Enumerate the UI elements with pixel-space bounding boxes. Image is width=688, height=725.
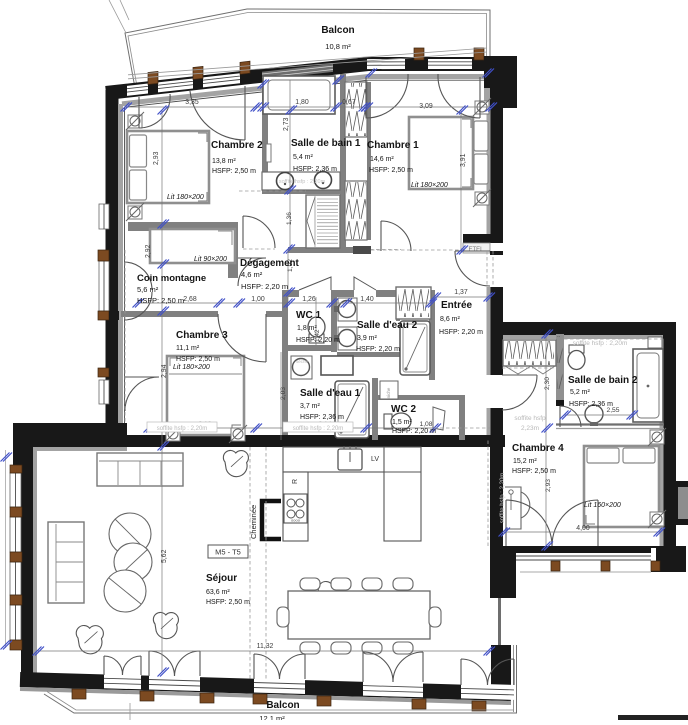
svg-text:Lit 160×200: Lit 160×200 — [584, 502, 621, 509]
svg-text:Chambre 4: Chambre 4 — [512, 443, 564, 454]
svg-text:2,30: 2,30 — [544, 377, 551, 390]
svg-text:63,6 m²: 63,6 m² — [206, 589, 230, 596]
svg-text:11,32: 11,32 — [257, 643, 274, 650]
svg-text:WC 1: WC 1 — [296, 310, 321, 321]
svg-text:HSFP: 2,50 m: HSFP: 2,50 m — [137, 296, 184, 305]
svg-text:M5 - T5: M5 - T5 — [215, 548, 241, 557]
svg-text:soffite hsfp : 2,20m: soffite hsfp : 2,20m — [293, 426, 344, 432]
svg-text:Lit 180×200: Lit 180×200 — [167, 194, 204, 201]
svg-text:HSFP: 2,20 m: HSFP: 2,20 m — [241, 282, 288, 291]
svg-text:Chambre 2: Chambre 2 — [211, 140, 263, 151]
svg-text:Lit 90×200: Lit 90×200 — [194, 256, 227, 263]
svg-text:1,08: 1,08 — [419, 421, 432, 428]
svg-text:1,26: 1,26 — [302, 296, 316, 303]
svg-text:3,9 m²: 3,9 m² — [357, 335, 378, 342]
svg-text:Salle d'eau 1: Salle d'eau 1 — [300, 388, 361, 399]
svg-text:Salle d'eau 2: Salle d'eau 2 — [357, 320, 418, 331]
svg-text:10,8 m²: 10,8 m² — [325, 42, 351, 51]
svg-text:1,8 m²: 1,8 m² — [297, 325, 318, 332]
svg-text:3,91: 3,91 — [460, 153, 467, 167]
svg-text:soffite hsfp : 2,20m: soffite hsfp : 2,20m — [500, 473, 506, 524]
svg-text:5,6 m²: 5,6 m² — [137, 285, 159, 294]
svg-text:12,1 m²: 12,1 m² — [259, 714, 285, 720]
svg-text:1,5 m²: 1,5 m² — [392, 419, 413, 426]
svg-text:4,00: 4,00 — [576, 525, 590, 532]
svg-text:niche: niche — [386, 387, 391, 398]
svg-text:15,2 m²: 15,2 m² — [513, 458, 537, 465]
svg-text:sèche: sèche — [296, 359, 309, 364]
svg-text:HSFP: 2,50 m: HSFP: 2,50 m — [512, 468, 556, 475]
svg-text:HSFP: 2,36 m: HSFP: 2,36 m — [569, 401, 613, 408]
svg-text:HSFP: 2,50 m: HSFP: 2,50 m — [176, 356, 220, 363]
svg-text:R: R — [292, 479, 299, 484]
svg-text:2,55: 2,55 — [606, 407, 619, 414]
svg-text:2,94: 2,94 — [161, 364, 168, 378]
svg-text:Chambre 3: Chambre 3 — [176, 330, 228, 341]
svg-text:HSFP: 2,36 m: HSFP: 2,36 m — [300, 414, 344, 421]
svg-text:5,62: 5,62 — [161, 549, 168, 563]
svg-text:1,37: 1,37 — [454, 289, 468, 296]
svg-text:2,68: 2,68 — [183, 296, 197, 303]
svg-text:HSFP: 2,20 m: HSFP: 2,20 m — [296, 337, 340, 344]
svg-text:5,2 m²: 5,2 m² — [570, 389, 591, 396]
svg-text:4,6 m²: 4,6 m² — [241, 270, 263, 279]
svg-text:HSFP: 2,50 m: HSFP: 2,50 m — [206, 599, 250, 606]
svg-text:WC 2: WC 2 — [391, 404, 416, 415]
svg-text:2,03: 2,03 — [280, 387, 287, 400]
svg-text:1,80: 1,80 — [295, 99, 309, 106]
svg-text:Balcon: Balcon — [321, 25, 354, 36]
svg-text:2,73: 2,73 — [283, 117, 290, 131]
svg-text:1,00: 1,00 — [251, 296, 265, 303]
svg-text:3,35: 3,35 — [185, 99, 199, 106]
svg-text:Salle de bain 1: Salle de bain 1 — [291, 138, 361, 149]
svg-text:HSFP: 2,20 m: HSFP: 2,20 m — [392, 428, 436, 435]
svg-text:oooo: oooo — [291, 518, 301, 523]
svg-text:2,23m: 2,23m — [521, 425, 539, 432]
svg-text:14,6 m²: 14,6 m² — [370, 156, 394, 163]
svg-text:2,92: 2,92 — [145, 244, 152, 258]
svg-text:13,8 m²: 13,8 m² — [212, 158, 236, 165]
svg-text:HSFP: 2,50 m: HSFP: 2,50 m — [212, 168, 256, 175]
svg-text:3,7 m²: 3,7 m² — [300, 403, 321, 410]
svg-text:5,4 m²: 5,4 m² — [293, 154, 314, 161]
svg-text:Balcon: Balcon — [266, 700, 299, 711]
svg-text:soffite hsfp : 2,20m: soffite hsfp : 2,20m — [573, 340, 628, 347]
svg-text:11,1 m²: 11,1 m² — [176, 345, 200, 352]
svg-text:1,36: 1,36 — [286, 212, 293, 225]
svg-text:HSFP: 2,36 m: HSFP: 2,36 m — [293, 166, 337, 173]
svg-text:Salle de bain 2: Salle de bain 2 — [568, 375, 638, 386]
svg-text:Coin montagne: Coin montagne — [137, 273, 206, 284]
svg-text:LV: LV — [371, 456, 379, 463]
svg-text:ETEL: ETEL — [468, 247, 484, 253]
svg-text:3,09: 3,09 — [419, 103, 433, 110]
svg-text:Chambre 1: Chambre 1 — [367, 140, 419, 151]
svg-text:Lit 180×200: Lit 180×200 — [411, 182, 448, 189]
svg-text:soffite hsfp : 2,20m: soffite hsfp : 2,20m — [279, 179, 326, 185]
svg-text:2,93: 2,93 — [153, 151, 160, 165]
svg-text:HSFP: 2,50 m: HSFP: 2,50 m — [369, 167, 413, 174]
svg-text:Lit 180×200: Lit 180×200 — [173, 364, 210, 371]
svg-text:Entrée: Entrée — [441, 300, 473, 311]
svg-text:Séjour: Séjour — [206, 573, 237, 584]
svg-text:2,93: 2,93 — [545, 479, 552, 492]
svg-text:8,6 m²: 8,6 m² — [440, 316, 461, 323]
svg-text:soffite hsfp: soffite hsfp — [514, 415, 546, 422]
svg-text:soffite hsfp : 2,20m: soffite hsfp : 2,20m — [157, 426, 208, 432]
svg-text:0,67: 0,67 — [342, 99, 356, 106]
svg-text:HSFP: 2,20 m: HSFP: 2,20 m — [356, 346, 400, 353]
svg-text:Dégagement: Dégagement — [240, 258, 300, 269]
svg-text:1,40: 1,40 — [360, 296, 374, 303]
svg-text:HSFP: 2,20 m: HSFP: 2,20 m — [439, 329, 483, 336]
